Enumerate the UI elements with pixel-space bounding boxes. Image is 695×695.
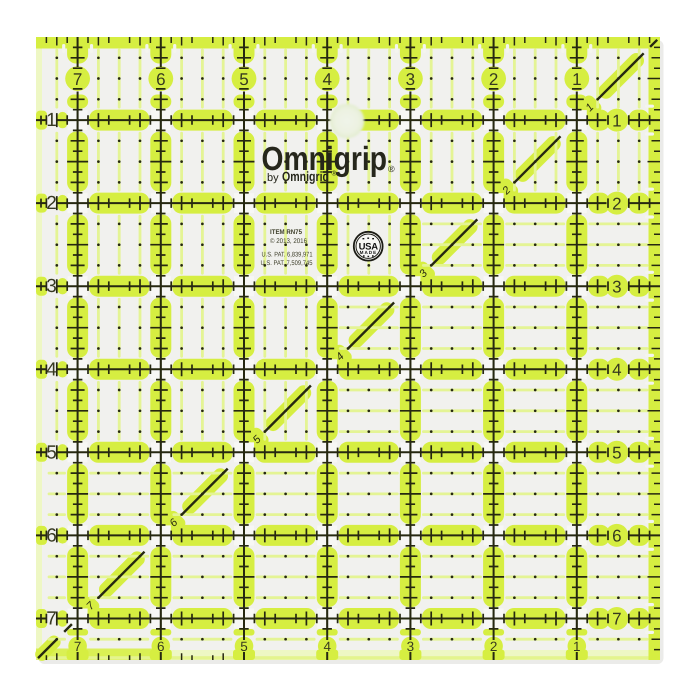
svg-text:Omnigrid: Omnigrid: [282, 169, 329, 184]
svg-text:MADE: MADE: [360, 250, 378, 255]
svg-text:5: 5: [46, 442, 57, 463]
svg-text:2: 2: [46, 193, 57, 214]
svg-text:®: ®: [332, 171, 338, 178]
svg-text:®: ®: [388, 164, 395, 174]
svg-text:4: 4: [322, 70, 331, 89]
svg-text:1: 1: [572, 70, 581, 89]
svg-text:1: 1: [573, 639, 581, 654]
svg-text:4: 4: [323, 639, 331, 654]
svg-text:7: 7: [46, 609, 57, 630]
svg-text:by: by: [267, 172, 279, 184]
svg-text:3: 3: [612, 277, 621, 296]
svg-text:6: 6: [156, 70, 165, 89]
svg-text:6: 6: [46, 525, 57, 546]
svg-text:3: 3: [406, 70, 415, 89]
svg-text:7: 7: [73, 70, 82, 89]
svg-text:5: 5: [612, 444, 621, 463]
svg-text:ITEM RN75: ITEM RN75: [270, 229, 302, 236]
svg-text:4: 4: [46, 359, 57, 380]
svg-text:6: 6: [157, 639, 165, 654]
svg-text:U.S. PAT. 6,839,971: U.S. PAT. 6,839,971: [262, 252, 313, 259]
svg-text:7: 7: [612, 610, 621, 629]
svg-text:2: 2: [490, 639, 498, 654]
svg-text:1: 1: [46, 110, 57, 131]
svg-text:1: 1: [612, 111, 621, 130]
svg-text:2: 2: [612, 194, 621, 213]
svg-text:U.S. PAT. 7,509,745: U.S. PAT. 7,509,745: [261, 260, 313, 267]
svg-text:6: 6: [612, 527, 621, 546]
svg-text:5: 5: [240, 639, 248, 654]
svg-text:3: 3: [46, 276, 57, 297]
svg-text:5: 5: [239, 70, 248, 89]
svg-text:4: 4: [612, 361, 621, 380]
svg-text:7: 7: [74, 639, 82, 654]
svg-text:3: 3: [407, 639, 415, 654]
svg-text:2: 2: [489, 70, 498, 89]
svg-text:© 2013, 2016: © 2013, 2016: [270, 238, 307, 245]
